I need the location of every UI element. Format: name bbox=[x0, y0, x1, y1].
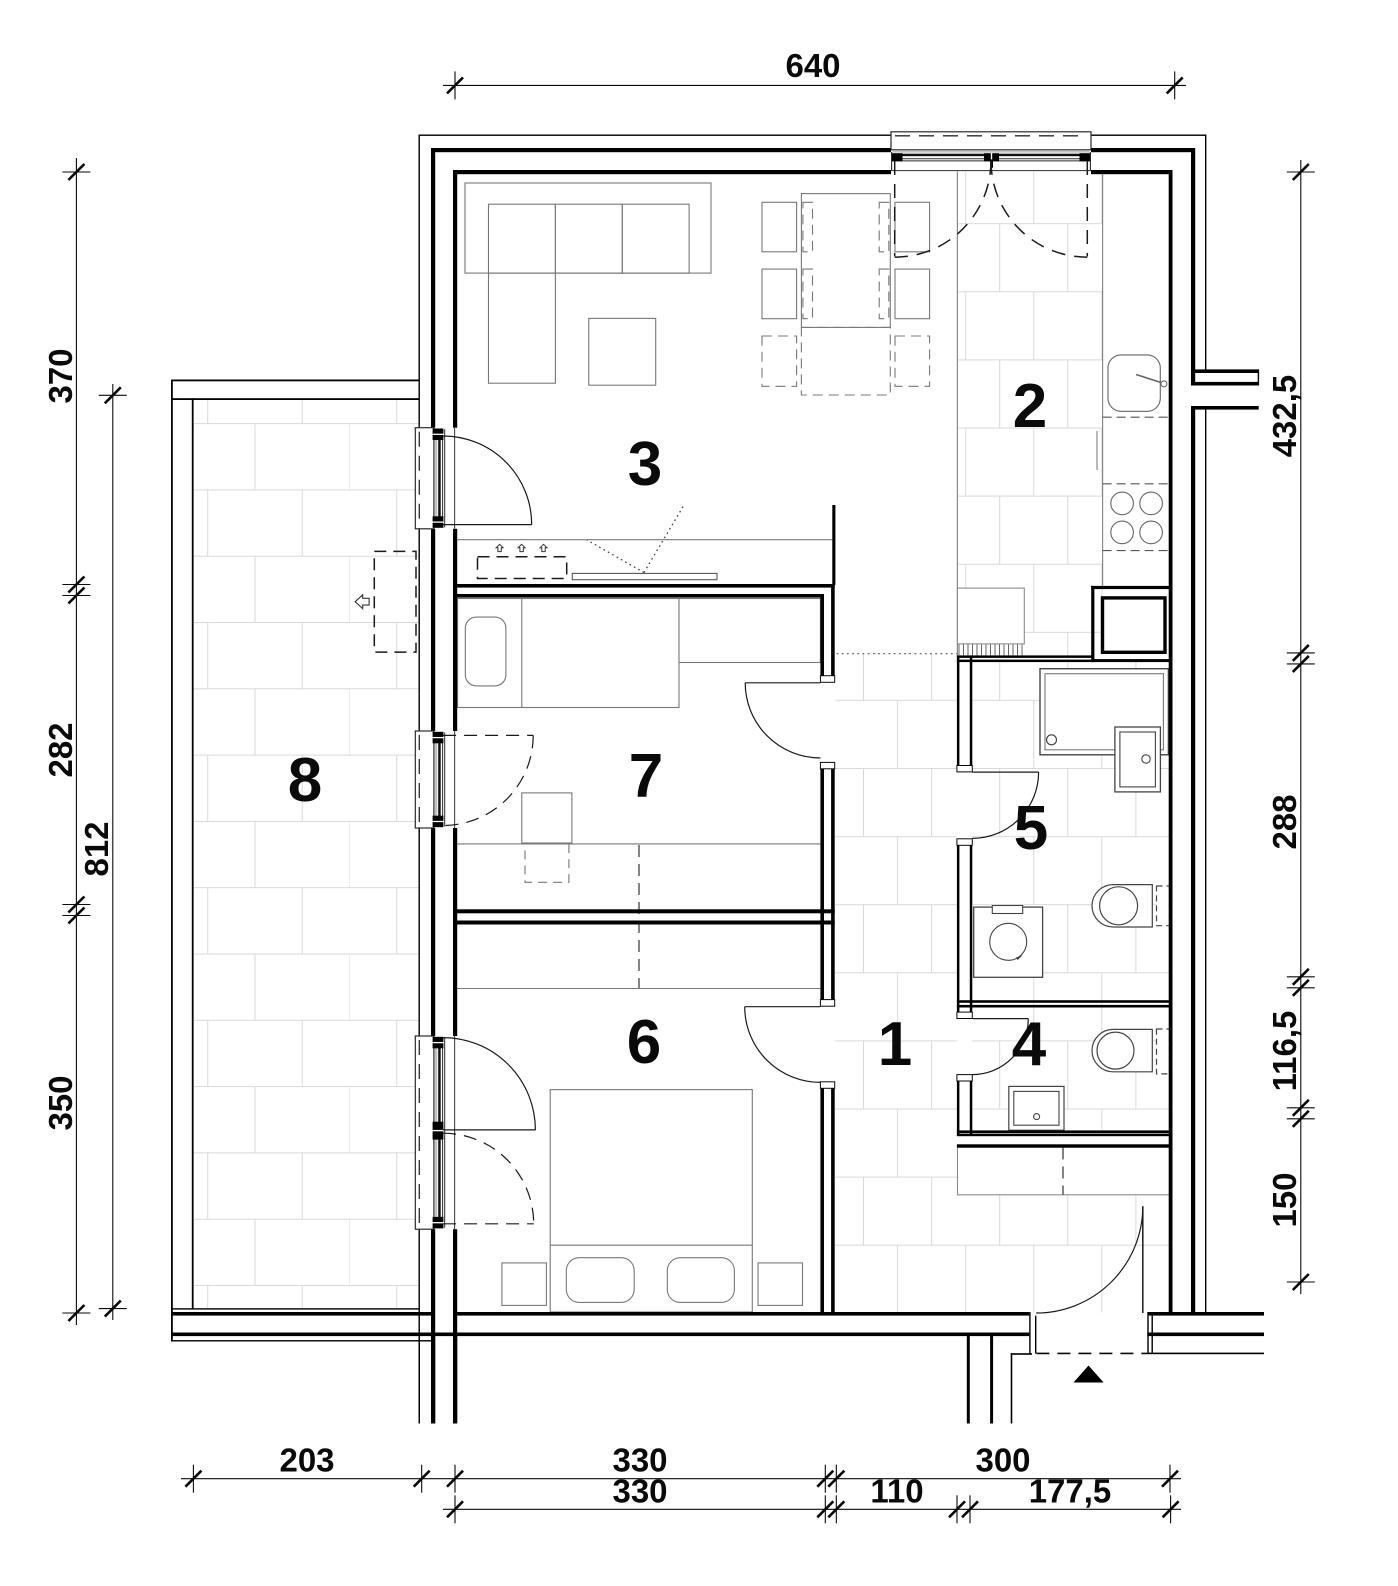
svg-text:8: 8 bbox=[288, 746, 322, 815]
svg-text:300: 300 bbox=[975, 1442, 1030, 1479]
svg-text:330: 330 bbox=[612, 1472, 667, 1509]
svg-text:640: 640 bbox=[785, 47, 840, 84]
svg-text:4: 4 bbox=[1012, 1010, 1047, 1079]
svg-text:203: 203 bbox=[279, 1442, 334, 1479]
svg-text:3: 3 bbox=[628, 430, 662, 499]
svg-text:1: 1 bbox=[878, 1010, 912, 1079]
svg-text:150: 150 bbox=[1266, 1172, 1303, 1227]
svg-text:7: 7 bbox=[629, 742, 663, 811]
svg-text:812: 812 bbox=[78, 821, 115, 876]
svg-text:2: 2 bbox=[1013, 372, 1047, 441]
svg-text:110: 110 bbox=[870, 1472, 923, 1509]
svg-text:177,5: 177,5 bbox=[1029, 1472, 1112, 1509]
svg-text:116,5: 116,5 bbox=[1266, 1011, 1303, 1092]
svg-text:5: 5 bbox=[1014, 794, 1048, 863]
svg-text:370: 370 bbox=[42, 348, 79, 403]
svg-text:288: 288 bbox=[1266, 794, 1303, 849]
svg-text:6: 6 bbox=[627, 1008, 661, 1077]
svg-text:282: 282 bbox=[42, 722, 79, 777]
svg-text:350: 350 bbox=[42, 1075, 79, 1130]
svg-text:432,5: 432,5 bbox=[1266, 375, 1303, 458]
